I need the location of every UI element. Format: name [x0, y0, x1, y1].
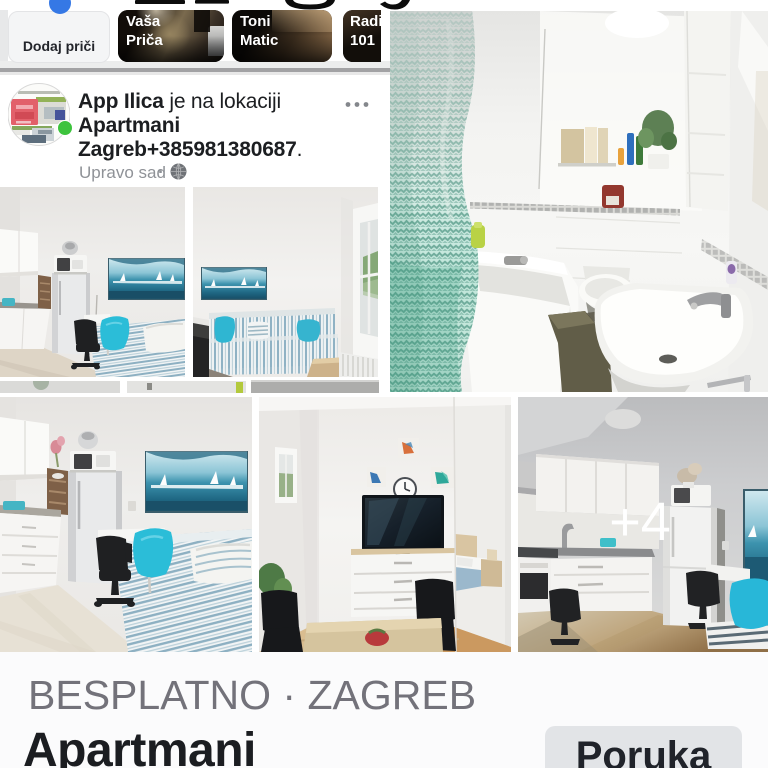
svg-text:+4: +4 — [609, 492, 671, 552]
